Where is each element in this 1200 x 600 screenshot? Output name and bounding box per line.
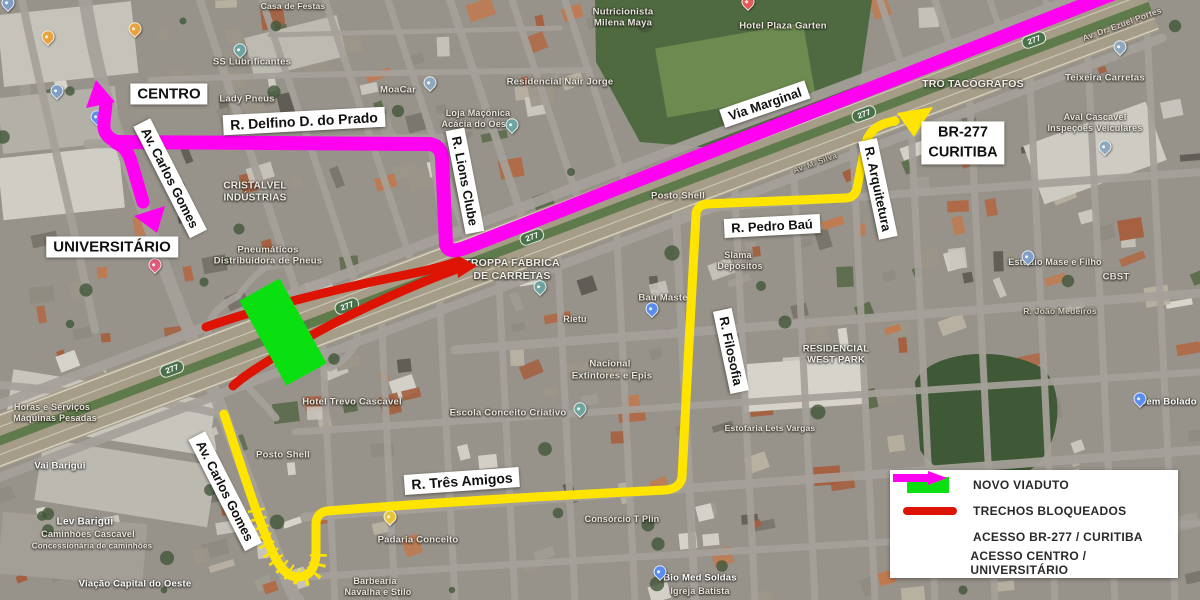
legend-item-acesso-centro: ACESSO CENTRO / UNIVERSITÁRIO	[890, 553, 1178, 574]
street-label-universitario: UNIVERSITÁRIO	[46, 237, 178, 258]
br277-line1: BR-277	[928, 123, 997, 143]
legend: NOVO VIADUTO TRECHOS BLOQUEADOS ACESSO B…	[890, 470, 1178, 578]
route-acesso-br277	[224, 107, 933, 577]
legend-label: ACESSO CENTRO / UNIVERSITÁRIO	[970, 549, 1178, 577]
universitario-arrowhead-icon	[134, 206, 165, 233]
legend-item-acesso-br277: ACESSO BR-277 / CURITIBA	[890, 527, 1178, 548]
legend-label: NOVO VIADUTO	[973, 478, 1069, 492]
trechos-bloqueados-swatch-icon	[903, 507, 957, 515]
magenta-arrow-swatch-icon	[890, 470, 948, 486]
street-label-br277-curitiba: BR-277 CURITIBA	[921, 121, 1004, 164]
br277-line2: CURITIBA	[928, 143, 997, 163]
blocked-arrowhead-icon	[455, 254, 477, 278]
legend-item-trechos-bloqueados: TRECHOS BLOQUEADOS	[890, 501, 1178, 522]
route-trechos-bloqueados	[206, 254, 477, 386]
legend-label: TRECHOS BLOQUEADOS	[973, 504, 1126, 518]
street-label-centro: CENTRO	[130, 84, 207, 105]
legend-label: ACESSO BR-277 / CURITIBA	[973, 530, 1143, 544]
map-canvas: Casa de FestasNutricionistaMilena MayaHo…	[0, 0, 1200, 600]
